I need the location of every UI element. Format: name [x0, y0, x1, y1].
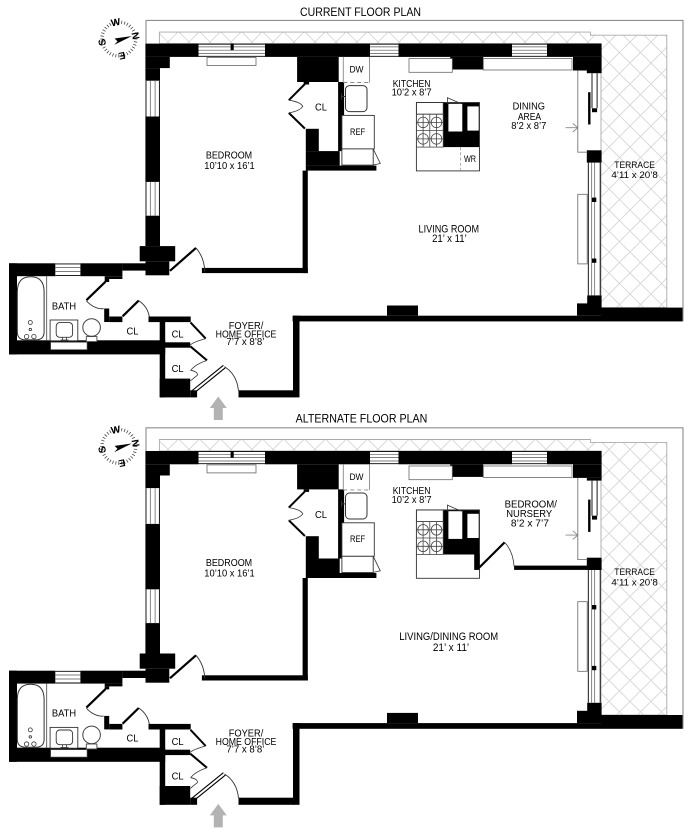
- svg-text:8’2 x 8’7: 8’2 x 8’7: [511, 121, 546, 132]
- svg-text:CURRENT FLOOR PLAN: CURRENT FLOOR PLAN: [300, 5, 421, 19]
- svg-text:21’ x 11’: 21’ x 11’: [432, 233, 467, 245]
- svg-text:DINING: DINING: [513, 102, 546, 113]
- svg-text:8’2 x 7’7: 8’2 x 7’7: [511, 519, 549, 530]
- svg-text:ALTERNATE FLOOR PLAN: ALTERNATE FLOOR PLAN: [296, 411, 428, 425]
- svg-text:WR: WR: [464, 154, 476, 164]
- svg-text:21’ x 11’: 21’ x 11’: [433, 642, 469, 654]
